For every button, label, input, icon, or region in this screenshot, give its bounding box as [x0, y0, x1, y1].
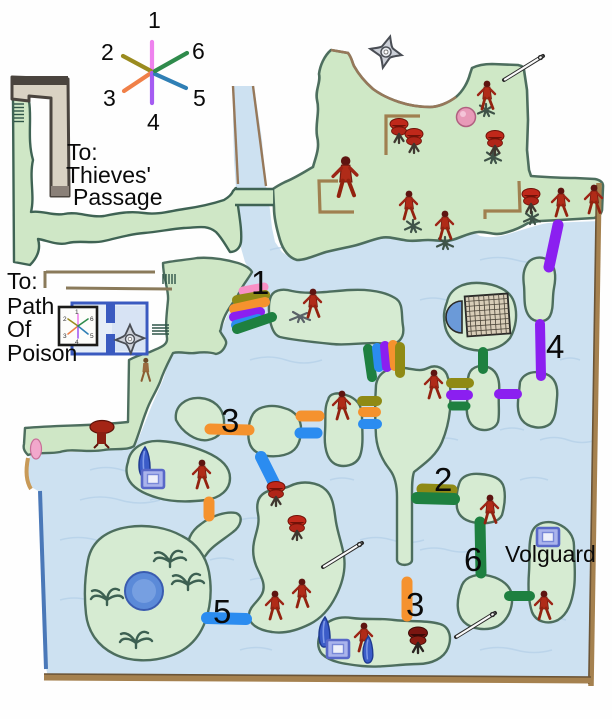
svg-text:2: 2 [101, 39, 114, 65]
svg-text:5: 5 [213, 593, 231, 630]
svg-text:3: 3 [406, 586, 424, 623]
svg-text:4: 4 [147, 109, 160, 135]
svg-text:2: 2 [63, 316, 67, 323]
svg-text:6: 6 [192, 38, 205, 64]
svg-text:Volguard: Volguard [505, 541, 596, 567]
svg-text:4: 4 [546, 328, 564, 365]
svg-text:5: 5 [90, 333, 94, 340]
svg-text:6: 6 [464, 541, 482, 578]
svg-text:1: 1 [251, 264, 269, 301]
svg-text:1: 1 [75, 309, 79, 316]
svg-text:6: 6 [90, 316, 94, 323]
svg-text:1: 1 [148, 7, 161, 33]
svg-text:Passage: Passage [73, 184, 163, 210]
svg-text:3: 3 [63, 333, 67, 340]
svg-text:To:: To: [7, 268, 38, 294]
svg-text:5: 5 [193, 85, 206, 111]
svg-text:Poison: Poison [7, 340, 77, 366]
svg-text:3: 3 [103, 85, 116, 111]
svg-text:3: 3 [221, 402, 239, 439]
svg-text:Of: Of [7, 316, 32, 342]
svg-text:2: 2 [434, 461, 452, 498]
